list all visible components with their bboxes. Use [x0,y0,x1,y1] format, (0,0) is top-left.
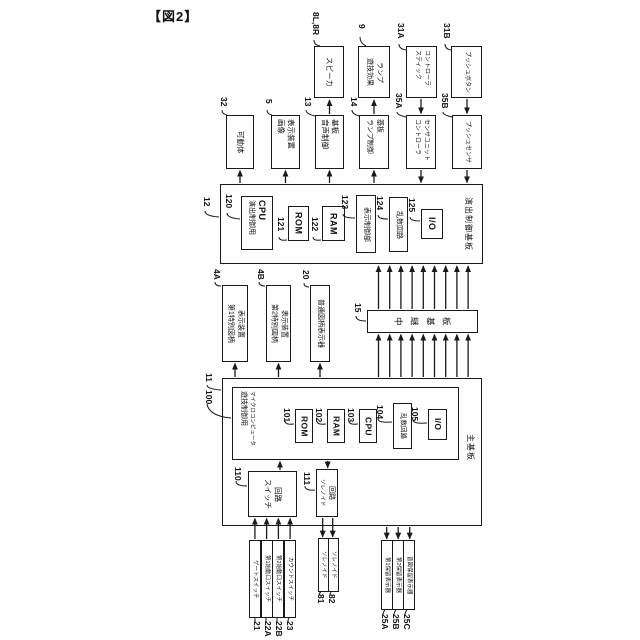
ref-25a: 25A [380,614,389,630]
ref-102: 102 [314,408,323,422]
box-label: I/O [426,213,438,235]
box-random-circuit-124: 乱数回路 [389,197,408,252]
box-label: スイッチ 回路 [263,475,283,513]
box-normal-symbol-display: 普通図柄表示器 [310,285,330,362]
label-line: 表示装置 [286,119,296,165]
effect-board-name: 演出制御基板 [463,190,474,258]
label-line: 普通図柄表示器 [315,289,325,358]
box-label: 演出制御用 CPU [246,200,268,246]
label-line: 乱数回路 [394,201,404,248]
label-line: 乱数回路 [398,407,408,445]
box-label: RAM [331,413,342,439]
ref-15: 15 [353,303,362,312]
box-count-switch: カウントスイッチ [284,540,296,618]
label-line: 第2特別図柄 [269,289,279,358]
ref-23: 23 [285,621,294,630]
ref-124: 124 [375,196,384,210]
label-line: 第1特別図柄 [225,289,235,358]
box-label: スティック コントローラ [413,50,431,94]
ref-82: 82 [327,594,336,603]
ref-25b: 25B [391,614,400,630]
label-line: 基板 [374,119,384,165]
box-hold-display-normal: 普図保留表示器 [403,540,415,610]
box-label: ランプ制御 基板 [364,119,384,165]
box-label: コントローラ センサユニット [412,119,430,165]
box-gate-switch: ゲートスイッチ [249,540,261,618]
box-label: 普通図柄表示器 [315,289,325,358]
box-game-control-microcomputer: 遊技制御用 マイクロコンピュータ [232,387,459,460]
label-line: コントローラ [412,119,421,165]
box-label: カウントスイッチ [286,543,294,615]
ref-22b: 22B [274,621,283,637]
label-line: 回路 [273,475,283,513]
label-char: 板 [441,314,453,329]
box-label: 表示制御部 [361,199,371,249]
label-line: 表示制御部 [361,199,371,249]
box-label: スピーカ [324,50,334,94]
box-label: I/O [432,413,443,436]
box-label: 音声制御 基板 [320,119,340,165]
ref-35b: 35B [440,93,449,109]
box-relay-board: 中継基板 [367,310,478,333]
label-line: RAM [328,210,340,237]
label-line: RAM [331,413,342,439]
ref-120: 120 [224,194,233,208]
ref-32: 32 [219,97,228,106]
box-solenoid-circuit: ソレノイド 回路 [316,469,338,517]
ref-13: 13 [303,97,312,106]
label-line: センサユニット [421,119,430,165]
ref-100: 100 [204,390,213,404]
ref-121: 121 [276,217,285,231]
label-line: 表示装置 [235,289,245,358]
label-line: 第2始動口スイッチ [274,543,282,615]
box-label: 乱数回路 [398,407,408,445]
box-movable-body: 可動体 [226,115,254,169]
label-line: 基板 [330,119,340,165]
label-line: CPU [256,200,268,246]
label-line: 演出制御用 [246,200,256,246]
box-label: 第1始動口スイッチ [263,543,271,615]
box-push-sensor: プッシュセンサ [452,115,482,169]
label-char: 基 [425,314,437,329]
ref-22a: 22A [263,621,272,637]
ref-105: 105 [410,407,419,421]
box-label: ソレノイド [320,541,328,589]
box-special-symbol-display-2: 第2特別図柄 表示装置 [266,285,291,362]
ref-8l8r: 8L,8R [311,12,320,35]
label-line: CPU [363,413,374,439]
ref-31b: 31B [442,23,451,39]
ref-5: 5 [264,99,273,104]
label-line: 遊技制御用 [238,391,248,456]
label-line: 遊技効果 [364,50,374,94]
box-label: 普図保留表示器 [405,543,413,607]
box-label: ROM [299,413,310,439]
box-label: 中継基板 [389,314,457,329]
box-effect-cpu: 演出制御用 CPU [241,196,273,250]
box-label: 可動体 [235,119,245,165]
label-line: ソレノイド [330,541,338,589]
box-ram-102: RAM [327,409,345,443]
label-line: I/O [432,413,443,436]
label-line: 第1始動口スイッチ [263,543,271,615]
ref-35a: 35A [394,93,403,109]
label-line: 第1保留表示器 [383,543,391,607]
box-sound-control-board: 音声制御 基板 [315,115,344,169]
box-switch-circuit: スイッチ 回路 [248,471,297,517]
ref-101: 101 [282,408,291,422]
ref-125: 125 [407,198,416,212]
box-io-125: I/O [421,209,443,239]
ref-9: 9 [357,24,366,29]
label-line: ROM [299,413,310,439]
main-board-name: 主基板 [465,432,476,462]
box-label: 第2始動口スイッチ [274,543,282,615]
label-line: 回路 [326,473,336,513]
label-line: ROM [293,210,305,237]
label-line: ソレノイド [320,541,328,589]
ref-122: 122 [310,217,319,231]
box-game-effect-lamp: 遊技効果 ランプ [358,46,390,98]
label-line: 第2保留表示器 [394,543,402,607]
figure-number-label: 【図2】 [148,6,198,25]
label-line: スピーカ [324,50,334,94]
ref-104: 104 [375,405,384,419]
box-lamp-control-board: ランプ制御 基板 [359,115,389,169]
label-line: カウントスイッチ [286,543,294,615]
patent-figure-2: 【図2】 スピーカ 遊技効果 ランプ スティック コントローラ プッシュボタン … [0,0,640,640]
box-stick-controller: スティック コントローラ [406,46,437,98]
ref-20: 20 [301,270,310,279]
ref-21: 21 [252,621,261,630]
box-display-control: 表示制御部 [356,195,376,253]
box-solenoid-82: ソレノイド [328,538,339,592]
label-line: 可動体 [235,119,245,165]
ref-25c: 25C [402,614,411,630]
ref-103: 103 [346,408,355,422]
ref-14: 14 [349,97,358,106]
box-label: CPU [363,413,374,439]
label-line: スイッチ [263,475,273,513]
ref-111: 111 [302,472,311,485]
box-start-switch-2: 第2始動口スイッチ [272,540,284,618]
ref-81: 81 [316,594,325,603]
label-line: 音声制御 [320,119,330,165]
box-label: ゲートスイッチ [251,543,259,615]
label-line: I/O [426,213,438,235]
box-label: 遊技効果 ランプ [364,50,384,94]
label-line: 画像 [276,119,286,165]
ref-12: 12 [202,197,211,206]
label-line: ソレノイド [318,473,326,513]
box-image-display: 画像 表示装置 [271,115,300,169]
box-label: ROM [293,210,305,237]
box-label: 第2特別図柄 表示装置 [269,289,289,358]
box-label: 第1特別図柄 表示装置 [225,289,245,358]
label-line: プッシュボタン [462,50,471,94]
box-label: ソレノイド [330,541,338,589]
label-line: コントローラ [422,50,431,94]
label-line: ランプ [374,50,384,94]
ref-31a: 31A [396,23,405,39]
ref-4b: 4B [256,269,265,280]
ref-11: 11 [204,373,213,382]
box-label: 遊技制御用 マイクロコンピュータ [238,391,256,456]
ref-4a: 4A [212,269,221,280]
box-label: RAM [328,210,340,237]
box-push-button: プッシュボタン [451,46,482,98]
ref-123: 123 [340,195,349,209]
label-line: 表示装置 [279,289,289,358]
box-label: 第2保留表示器 [394,543,402,607]
label-line: ランプ制御 [364,119,374,165]
label-line: 普図保留表示器 [405,543,413,607]
box-rom-121: ROM [288,206,309,241]
label-char: 継 [409,314,421,329]
box-label: 画像 表示装置 [276,119,296,165]
box-label: ソレノイド 回路 [318,473,336,513]
box-ram-122: RAM [322,206,345,241]
label-line: プッシュセンサ [463,119,472,165]
box-io-105: I/O [428,409,447,440]
label-char: 中 [393,314,405,329]
box-special-symbol-display-1: 第1特別図柄 表示装置 [222,285,248,362]
label-line: スティック [413,50,422,94]
box-label: プッシュセンサ [463,119,472,165]
box-label: 乱数回路 [394,201,404,248]
label-line: ゲートスイッチ [251,543,259,615]
box-controller-sensor-unit: コントローラ センサユニット [406,115,436,169]
box-speaker: スピーカ [314,46,344,98]
label-line: マイクロコンピュータ [248,391,256,456]
box-label: プッシュボタン [462,50,471,94]
ref-110: 110 [233,467,242,481]
box-label: 第1保留表示器 [383,543,391,607]
box-rom-101: ROM [295,409,313,443]
